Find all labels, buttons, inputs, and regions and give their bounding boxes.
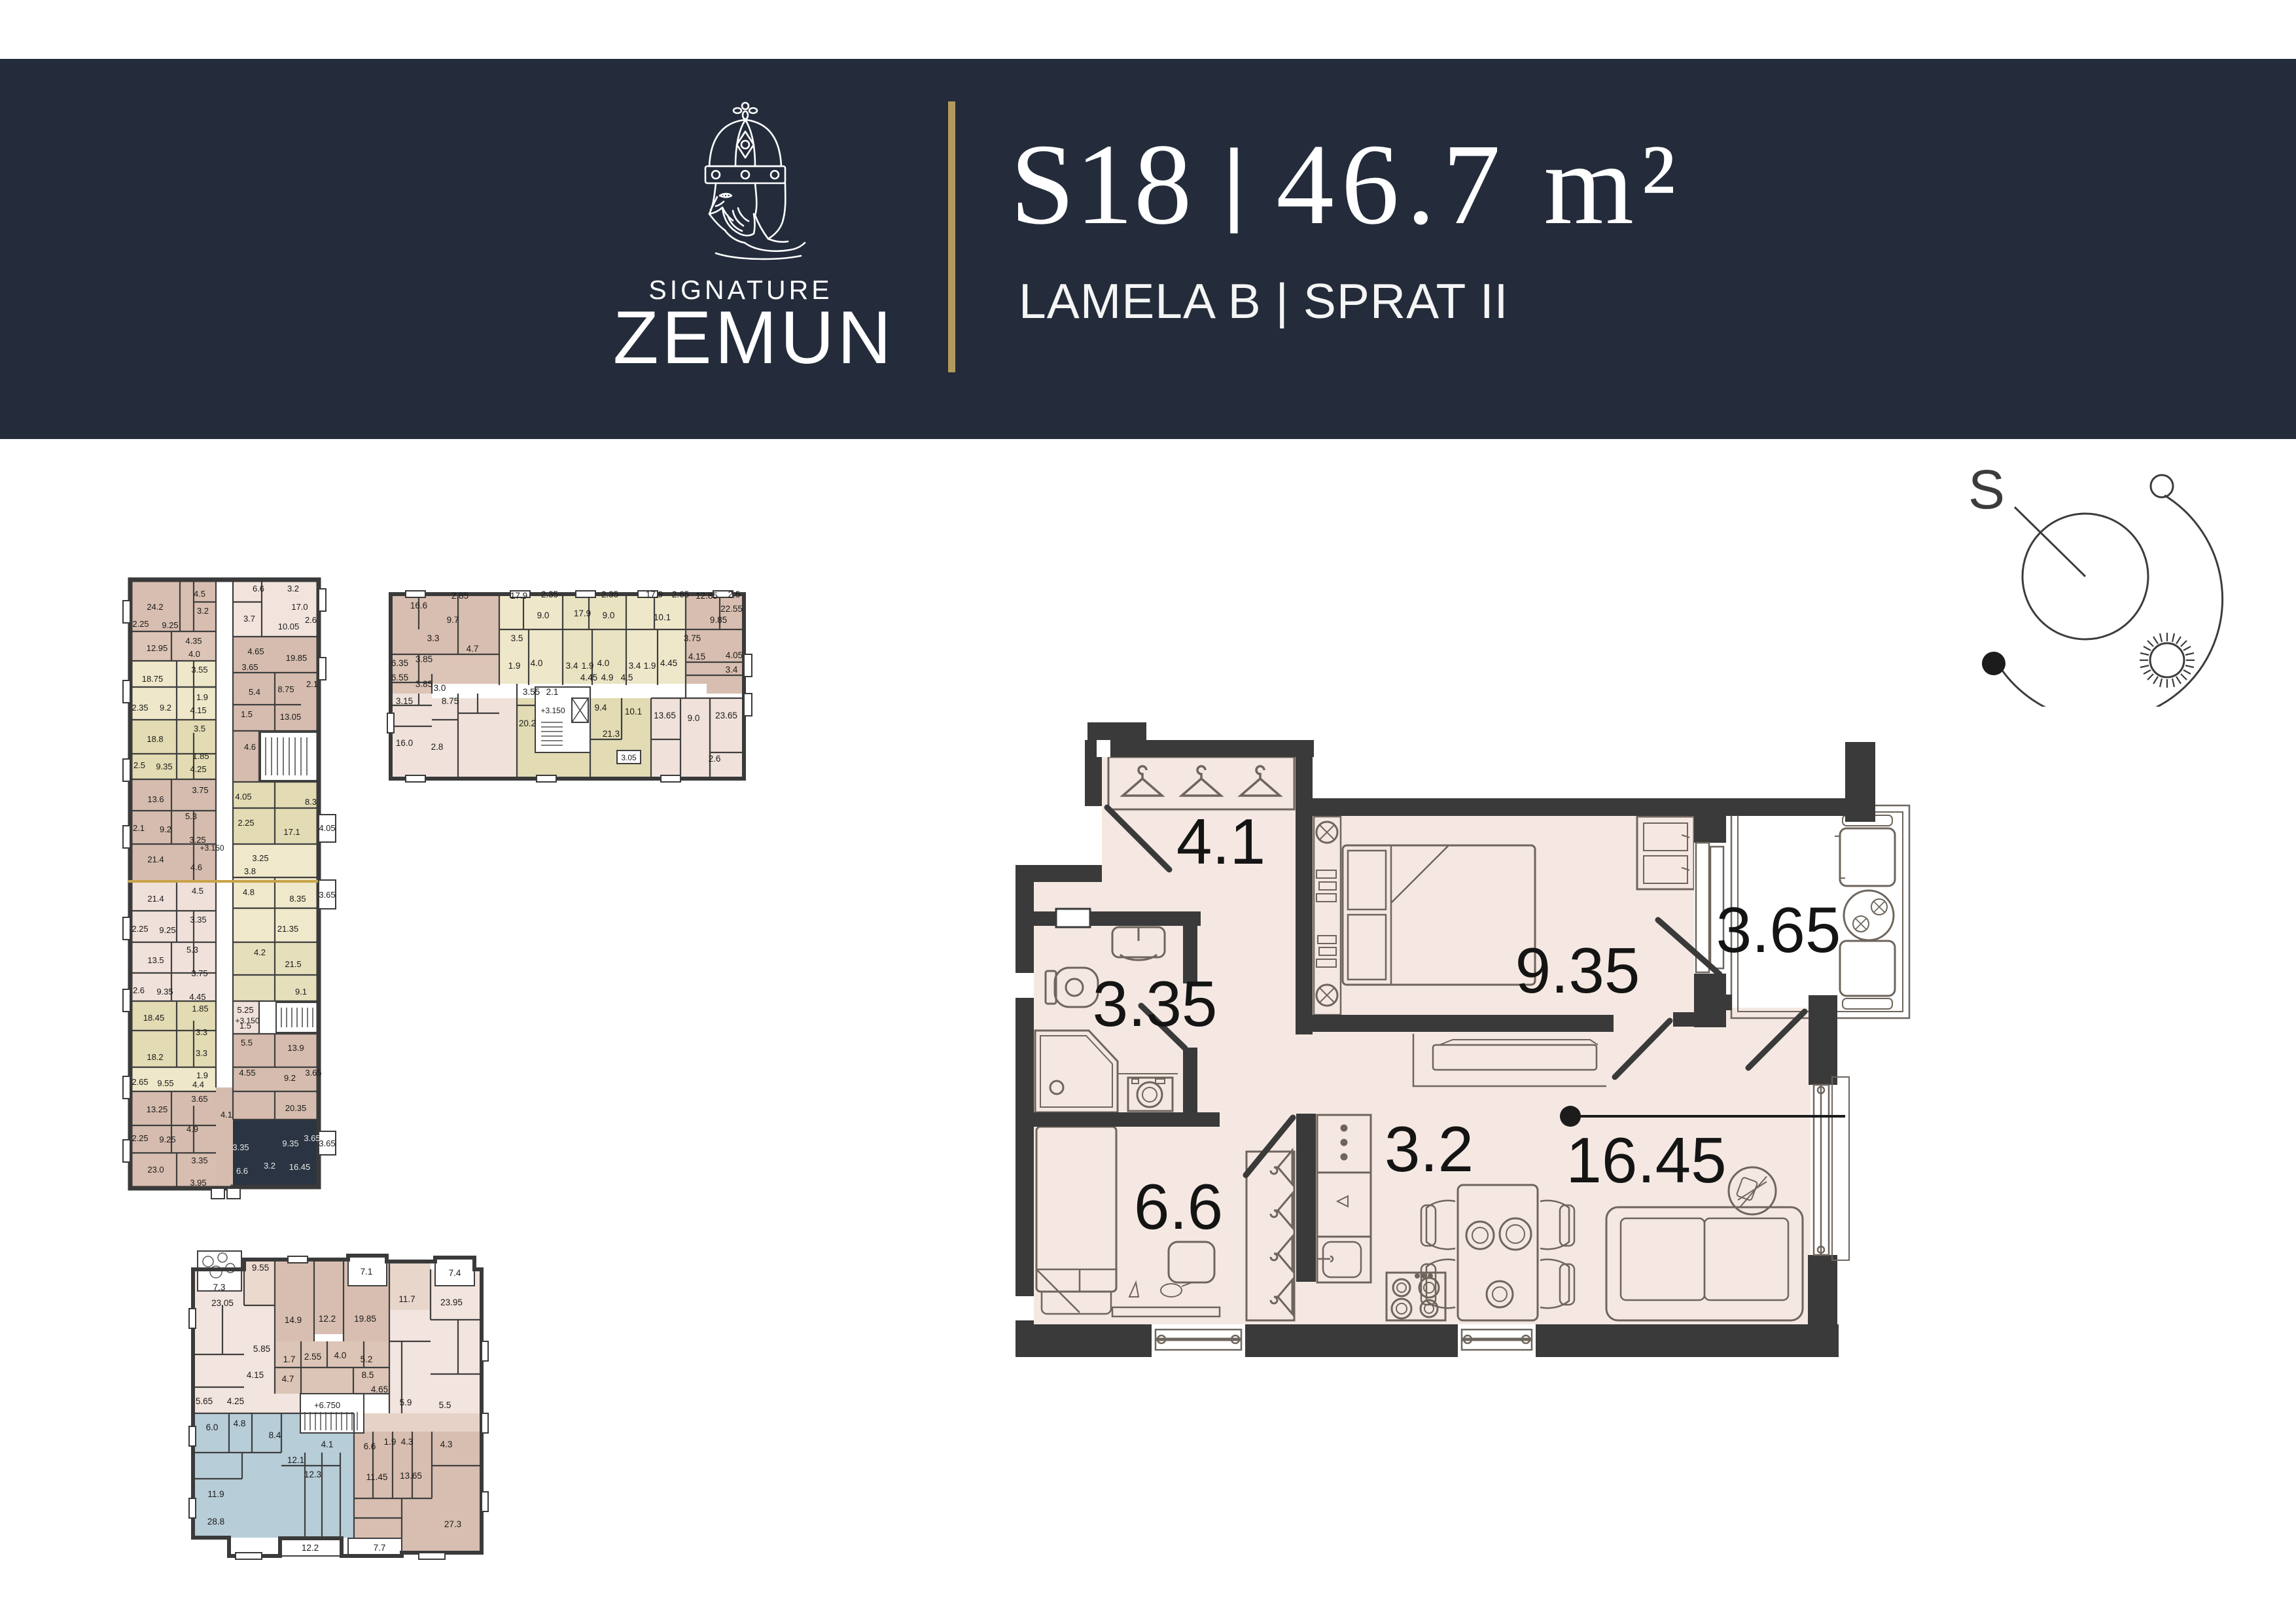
svg-text:17.0: 17.0 bbox=[291, 602, 308, 612]
svg-text:9.55: 9.55 bbox=[252, 1263, 269, 1273]
svg-text:3.8: 3.8 bbox=[244, 866, 256, 876]
svg-text:1.9: 1.9 bbox=[384, 1437, 397, 1447]
svg-text:12.2: 12.2 bbox=[302, 1543, 319, 1553]
svg-text:3.2: 3.2 bbox=[197, 606, 209, 616]
svg-text:5.5: 5.5 bbox=[439, 1400, 451, 1410]
svg-text:20.35: 20.35 bbox=[285, 1103, 307, 1113]
svg-text:5.2: 5.2 bbox=[361, 1354, 373, 1364]
svg-text:13.5: 13.5 bbox=[147, 955, 164, 965]
svg-text:5.25: 5.25 bbox=[237, 1005, 253, 1015]
svg-text:+6.750: +6.750 bbox=[314, 1400, 340, 1410]
svg-text:3.5: 3.5 bbox=[194, 724, 205, 733]
svg-text:S: S bbox=[1968, 459, 2005, 520]
svg-text:4.9: 4.9 bbox=[186, 1124, 198, 1134]
svg-text:12.2: 12.2 bbox=[319, 1314, 336, 1324]
svg-text:2.85: 2.85 bbox=[451, 591, 468, 601]
svg-text:6.6: 6.6 bbox=[364, 1441, 376, 1451]
svg-text:3.85: 3.85 bbox=[415, 654, 433, 664]
svg-text:4.55: 4.55 bbox=[239, 1068, 255, 1078]
svg-text:9.0: 9.0 bbox=[603, 610, 615, 620]
svg-text:3.3: 3.3 bbox=[427, 633, 440, 643]
svg-text:18.8: 18.8 bbox=[147, 734, 163, 744]
svg-text:9.0: 9.0 bbox=[688, 713, 700, 723]
svg-text:22.55: 22.55 bbox=[720, 604, 743, 614]
svg-text:23.65: 23.65 bbox=[715, 711, 737, 720]
svg-text:+3.150: +3.150 bbox=[200, 843, 224, 853]
svg-text:2.65: 2.65 bbox=[132, 1077, 148, 1087]
svg-text:11.7: 11.7 bbox=[398, 1294, 415, 1304]
svg-text:4.45: 4.45 bbox=[660, 658, 677, 668]
svg-text:9.35: 9.35 bbox=[156, 762, 172, 771]
svg-text:13.05: 13.05 bbox=[280, 712, 302, 722]
svg-text:6.6: 6.6 bbox=[253, 584, 264, 593]
svg-text:14.9: 14.9 bbox=[285, 1315, 302, 1325]
svg-text:13.6: 13.6 bbox=[147, 794, 164, 804]
svg-text:1.85: 1.85 bbox=[192, 751, 209, 761]
svg-text:5.65: 5.65 bbox=[196, 1396, 213, 1406]
svg-text:10.05: 10.05 bbox=[278, 622, 300, 631]
svg-text:2.35: 2.35 bbox=[601, 590, 618, 599]
svg-text:2.55: 2.55 bbox=[304, 1352, 321, 1362]
svg-text:3.2: 3.2 bbox=[264, 1161, 275, 1171]
svg-text:5.3: 5.3 bbox=[185, 811, 197, 821]
svg-text:4.05: 4.05 bbox=[319, 823, 335, 833]
svg-text:9.25: 9.25 bbox=[162, 620, 178, 630]
svg-text:3.2: 3.2 bbox=[1385, 1113, 1474, 1185]
svg-text:13.65: 13.65 bbox=[400, 1471, 422, 1481]
svg-text:11.9: 11.9 bbox=[207, 1489, 224, 1499]
svg-text:2.6: 2.6 bbox=[709, 754, 721, 764]
svg-text:23.0: 23.0 bbox=[147, 1165, 164, 1174]
svg-text:2.35: 2.35 bbox=[541, 590, 558, 599]
svg-text:3.65: 3.65 bbox=[1716, 894, 1841, 966]
svg-text:3.65: 3.65 bbox=[241, 662, 258, 672]
svg-text:4.8: 4.8 bbox=[243, 887, 255, 897]
svg-text:4.5: 4.5 bbox=[194, 589, 205, 599]
svg-text:3.75: 3.75 bbox=[192, 785, 208, 795]
svg-text:7.4: 7.4 bbox=[449, 1268, 461, 1278]
svg-text:9.7: 9.7 bbox=[447, 615, 459, 625]
svg-text:16.6: 16.6 bbox=[410, 601, 427, 610]
svg-text:21.3: 21.3 bbox=[603, 729, 620, 739]
svg-text:3.65: 3.65 bbox=[304, 1133, 320, 1143]
svg-text:3.3: 3.3 bbox=[196, 1048, 207, 1058]
svg-text:8.3: 8.3 bbox=[305, 797, 317, 807]
svg-text:3.05: 3.05 bbox=[621, 753, 637, 762]
svg-text:3.95: 3.95 bbox=[190, 1178, 206, 1188]
svg-text:4.25: 4.25 bbox=[227, 1396, 244, 1406]
svg-text:11.45: 11.45 bbox=[366, 1472, 388, 1482]
svg-text:16.0: 16.0 bbox=[396, 738, 413, 748]
svg-text:20.2: 20.2 bbox=[519, 718, 536, 728]
svg-text:7.1: 7.1 bbox=[361, 1267, 373, 1277]
svg-text:4.25: 4.25 bbox=[190, 764, 206, 774]
svg-text:4.7: 4.7 bbox=[282, 1374, 294, 1384]
svg-text:4.6: 4.6 bbox=[244, 742, 256, 752]
svg-text:17.9: 17.9 bbox=[510, 591, 527, 601]
svg-text:9.25: 9.25 bbox=[159, 1135, 175, 1144]
svg-text:3.5: 3.5 bbox=[511, 633, 523, 643]
svg-text:18.2: 18.2 bbox=[147, 1052, 163, 1062]
svg-text:2.25: 2.25 bbox=[132, 1133, 148, 1143]
svg-text:4.5: 4.5 bbox=[621, 673, 633, 682]
svg-text:4.0: 4.0 bbox=[334, 1350, 347, 1360]
svg-text:4.05: 4.05 bbox=[726, 650, 743, 660]
svg-text:5.9: 5.9 bbox=[400, 1398, 412, 1407]
svg-text:16.45: 16.45 bbox=[1566, 1124, 1726, 1196]
svg-text:7.3: 7.3 bbox=[213, 1282, 226, 1292]
svg-text:2.1: 2.1 bbox=[306, 679, 318, 689]
svg-text:3.3: 3.3 bbox=[196, 1027, 207, 1037]
svg-text:2.1: 2.1 bbox=[133, 823, 145, 833]
svg-text:19.85: 19.85 bbox=[286, 653, 308, 663]
svg-text:3.4: 3.4 bbox=[629, 661, 641, 671]
svg-text:23.05: 23.05 bbox=[211, 1298, 234, 1308]
svg-text:4.9: 4.9 bbox=[601, 673, 614, 682]
svg-text:18.75: 18.75 bbox=[142, 674, 164, 684]
svg-text:6.6: 6.6 bbox=[1134, 1171, 1223, 1243]
svg-text:3.65: 3.65 bbox=[319, 890, 335, 900]
svg-text:24.2: 24.2 bbox=[147, 602, 163, 612]
svg-text:4.0: 4.0 bbox=[531, 658, 543, 668]
svg-text:2.8: 2.8 bbox=[431, 742, 444, 752]
svg-text:4.15: 4.15 bbox=[688, 652, 705, 662]
svg-text:3.35: 3.35 bbox=[232, 1142, 249, 1152]
svg-text:2.35: 2.35 bbox=[132, 703, 148, 713]
svg-text:12.85: 12.85 bbox=[696, 591, 718, 601]
svg-text:5.4: 5.4 bbox=[249, 687, 260, 697]
svg-text:9.0: 9.0 bbox=[537, 610, 550, 620]
svg-text:9.2: 9.2 bbox=[160, 824, 171, 834]
svg-text:3.4: 3.4 bbox=[726, 665, 738, 675]
svg-text:6.55: 6.55 bbox=[391, 673, 408, 682]
svg-text:2.25: 2.25 bbox=[132, 619, 149, 629]
svg-text:8.35: 8.35 bbox=[289, 894, 306, 904]
svg-text:7.7: 7.7 bbox=[374, 1543, 386, 1553]
svg-text:3.4: 3.4 bbox=[566, 661, 578, 671]
svg-text:3.35: 3.35 bbox=[190, 915, 206, 925]
svg-text:9.2: 9.2 bbox=[160, 703, 171, 713]
svg-text:2.6: 2.6 bbox=[133, 985, 145, 995]
svg-text:1.9: 1.9 bbox=[644, 661, 656, 671]
svg-text:4.6: 4.6 bbox=[190, 862, 202, 872]
svg-text:3.35: 3.35 bbox=[191, 1156, 207, 1165]
svg-text:13.9: 13.9 bbox=[287, 1043, 304, 1053]
svg-text:2.25: 2.25 bbox=[238, 818, 254, 828]
svg-text:3.7: 3.7 bbox=[243, 614, 255, 624]
svg-text:4.3: 4.3 bbox=[401, 1437, 414, 1447]
svg-text:4.8: 4.8 bbox=[234, 1419, 246, 1428]
svg-text:9.25: 9.25 bbox=[159, 925, 175, 935]
svg-text:17.9: 17.9 bbox=[574, 609, 591, 618]
svg-text:13.25: 13.25 bbox=[147, 1104, 168, 1114]
svg-text:3.75: 3.75 bbox=[191, 968, 207, 978]
svg-text:3.75: 3.75 bbox=[684, 633, 701, 643]
svg-text:9.35: 9.35 bbox=[1515, 934, 1640, 1006]
svg-text:8.75: 8.75 bbox=[277, 684, 294, 694]
svg-text:3.65: 3.65 bbox=[305, 1068, 321, 1078]
svg-text:3.35: 3.35 bbox=[1093, 968, 1218, 1040]
svg-text:6.35: 6.35 bbox=[391, 658, 408, 668]
svg-text:27.3: 27.3 bbox=[444, 1519, 461, 1529]
svg-text:6.0: 6.0 bbox=[206, 1422, 219, 1432]
svg-text:4.1: 4.1 bbox=[221, 1110, 232, 1120]
svg-text:4.0: 4.0 bbox=[188, 649, 200, 659]
svg-text:4.35: 4.35 bbox=[185, 636, 202, 646]
svg-text:2.5: 2.5 bbox=[133, 760, 145, 770]
svg-text:4.1: 4.1 bbox=[321, 1439, 334, 1449]
svg-text:2.65: 2.65 bbox=[672, 590, 689, 599]
svg-text:3.0: 3.0 bbox=[434, 683, 446, 693]
svg-text:4.3: 4.3 bbox=[440, 1439, 453, 1449]
svg-text:8.75: 8.75 bbox=[442, 696, 459, 706]
svg-text:21.4: 21.4 bbox=[147, 894, 164, 904]
svg-text:10.1: 10.1 bbox=[654, 612, 671, 622]
svg-text:4.45: 4.45 bbox=[189, 992, 205, 1002]
svg-text:2.1: 2.1 bbox=[546, 687, 559, 697]
svg-text:5.5: 5.5 bbox=[241, 1038, 253, 1048]
svg-text:3.55: 3.55 bbox=[523, 687, 540, 697]
svg-text:3.65: 3.65 bbox=[319, 1139, 335, 1148]
svg-text:9.85: 9.85 bbox=[710, 615, 727, 625]
svg-text:17.9: 17.9 bbox=[646, 590, 663, 599]
svg-text:+3.150: +3.150 bbox=[540, 706, 565, 715]
svg-text:1.9: 1.9 bbox=[196, 692, 208, 702]
svg-text:5.3: 5.3 bbox=[186, 945, 198, 955]
svg-text:9.35: 9.35 bbox=[156, 987, 173, 997]
svg-text:21.35: 21.35 bbox=[277, 924, 299, 934]
svg-text:9.2: 9.2 bbox=[284, 1073, 296, 1083]
svg-text:9.55: 9.55 bbox=[157, 1078, 173, 1088]
svg-text:21.5: 21.5 bbox=[285, 959, 301, 969]
svg-text:28.8: 28.8 bbox=[207, 1517, 224, 1527]
svg-text:8.4: 8.4 bbox=[269, 1430, 281, 1440]
svg-text:4.1: 4.1 bbox=[1176, 805, 1265, 877]
svg-text:12.95: 12.95 bbox=[147, 643, 168, 653]
svg-text:4.15: 4.15 bbox=[247, 1370, 264, 1380]
svg-text:4.15: 4.15 bbox=[190, 705, 206, 715]
svg-text:4.65: 4.65 bbox=[371, 1385, 388, 1394]
svg-text:17.1: 17.1 bbox=[283, 827, 300, 837]
svg-text:5.85: 5.85 bbox=[253, 1344, 270, 1354]
svg-text:9.4: 9.4 bbox=[595, 703, 607, 713]
svg-text:12.1: 12.1 bbox=[287, 1455, 304, 1465]
svg-text:23.95: 23.95 bbox=[440, 1297, 463, 1307]
svg-text:1.7: 1.7 bbox=[283, 1354, 296, 1364]
svg-text:10.1: 10.1 bbox=[625, 707, 642, 716]
svg-text:18.45: 18.45 bbox=[143, 1013, 165, 1023]
svg-text:2.6: 2.6 bbox=[305, 615, 317, 625]
svg-text:1.9: 1.9 bbox=[582, 661, 594, 671]
svg-text:3.55: 3.55 bbox=[191, 665, 207, 675]
svg-text:12.3: 12.3 bbox=[304, 1470, 321, 1479]
svg-text:4.0: 4.0 bbox=[597, 658, 610, 668]
svg-text:1.5: 1.5 bbox=[241, 709, 253, 719]
svg-text:3.85: 3.85 bbox=[415, 679, 433, 689]
svg-text:3.65: 3.65 bbox=[191, 1094, 207, 1104]
svg-text:2.5: 2.5 bbox=[728, 590, 741, 599]
svg-text:1.9: 1.9 bbox=[508, 661, 521, 671]
svg-text:4.5: 4.5 bbox=[192, 886, 203, 896]
svg-text:1.85: 1.85 bbox=[192, 1004, 208, 1014]
svg-text:8.5: 8.5 bbox=[362, 1370, 374, 1380]
svg-text:16.45: 16.45 bbox=[289, 1162, 311, 1172]
svg-text:2.25: 2.25 bbox=[132, 924, 148, 934]
svg-text:6.6: 6.6 bbox=[236, 1166, 248, 1176]
svg-text:3.15: 3.15 bbox=[396, 696, 413, 706]
svg-text:9.1: 9.1 bbox=[295, 987, 307, 997]
svg-text:4.4: 4.4 bbox=[192, 1080, 204, 1089]
svg-text:4.7: 4.7 bbox=[467, 644, 479, 654]
svg-text:9.35: 9.35 bbox=[282, 1139, 298, 1148]
svg-text:4.05: 4.05 bbox=[235, 792, 251, 802]
svg-text:+3.150: +3.150 bbox=[235, 1016, 259, 1025]
svg-text:3.2: 3.2 bbox=[287, 584, 299, 593]
svg-text:4.65: 4.65 bbox=[247, 646, 264, 656]
svg-text:3.25: 3.25 bbox=[252, 853, 268, 863]
svg-text:21.4: 21.4 bbox=[147, 855, 164, 864]
svg-text:1.9: 1.9 bbox=[196, 1070, 208, 1080]
svg-text:4.2: 4.2 bbox=[254, 947, 266, 957]
svg-text:13.65: 13.65 bbox=[654, 711, 676, 720]
svg-text:4.45: 4.45 bbox=[580, 673, 597, 682]
svg-text:19.85: 19.85 bbox=[354, 1314, 376, 1324]
